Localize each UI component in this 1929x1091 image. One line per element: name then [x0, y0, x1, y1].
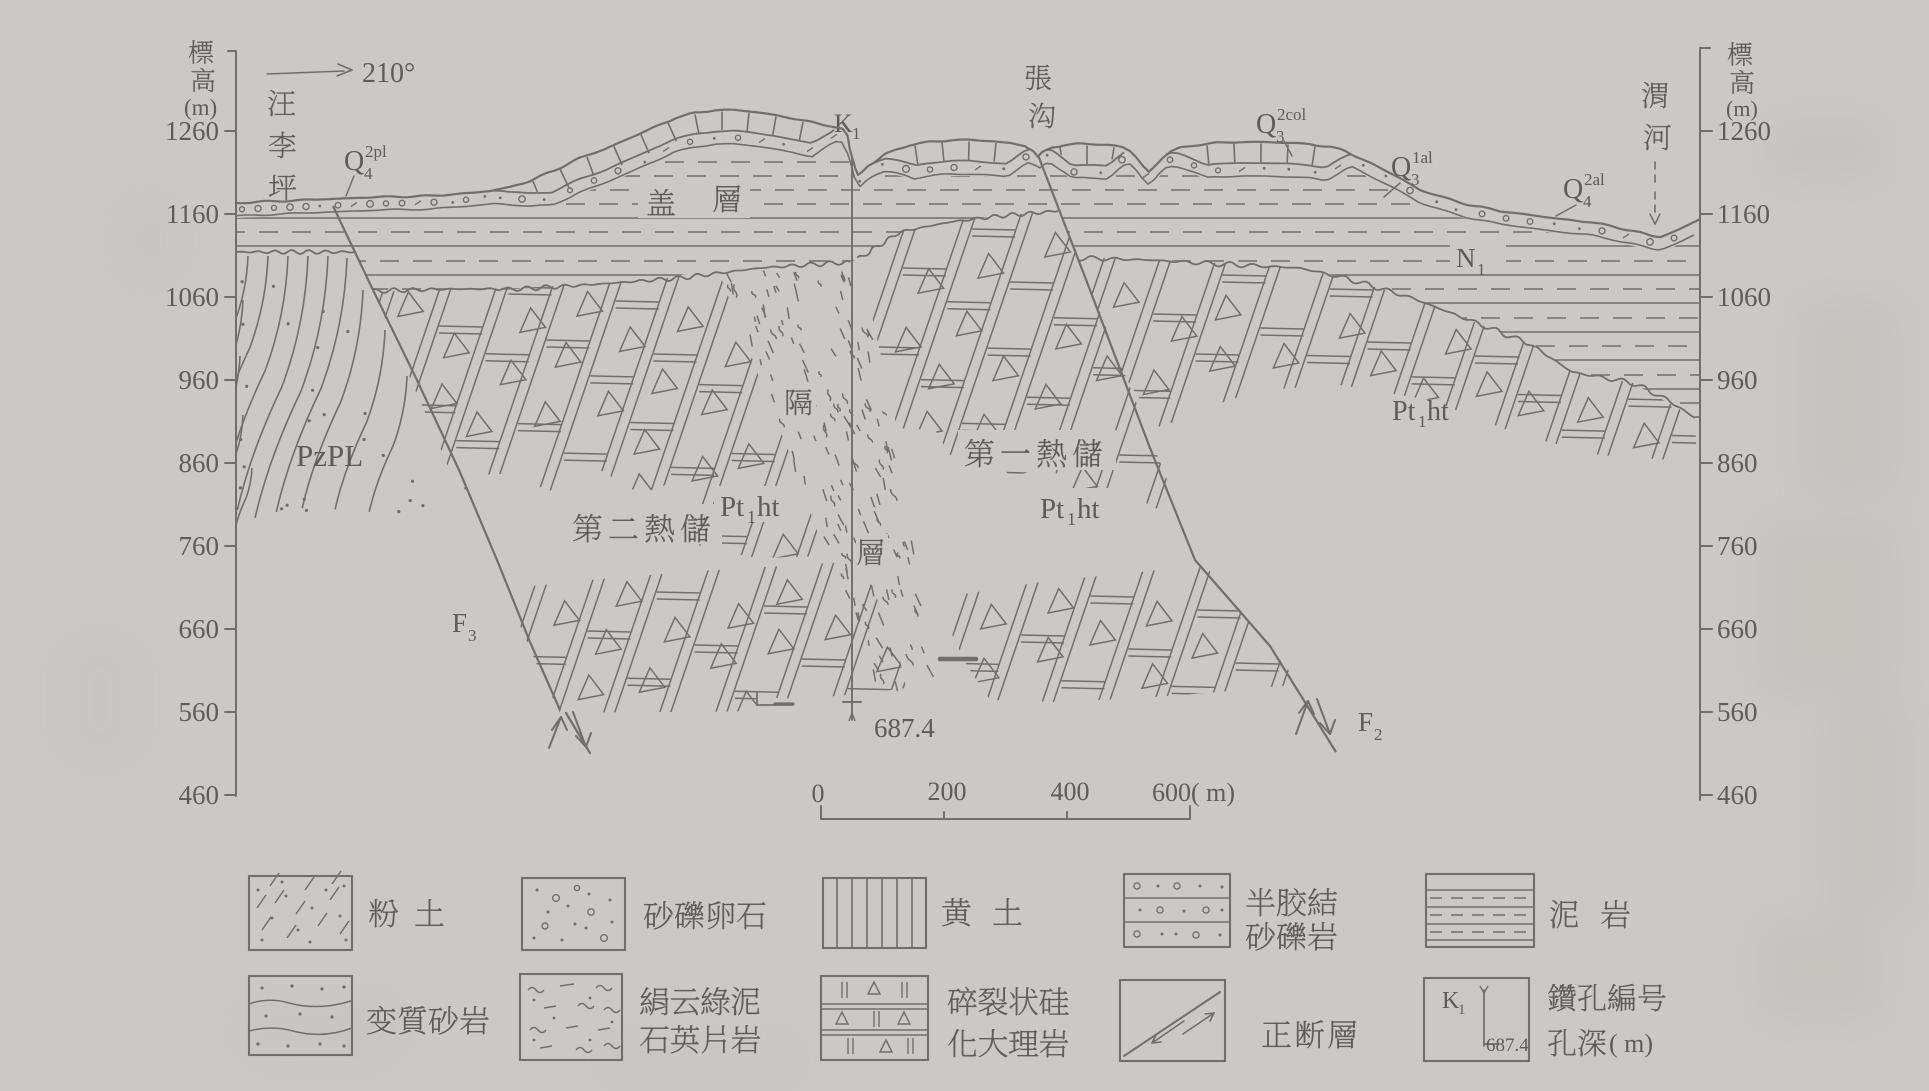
svg-text:(m): (m) — [1726, 96, 1758, 121]
svg-text:400: 400 — [1051, 777, 1090, 806]
svg-text:ht: ht — [757, 491, 780, 523]
svg-text:2al: 2al — [1584, 170, 1605, 189]
svg-text:N: N — [1456, 243, 1476, 273]
svg-text:560: 560 — [179, 697, 220, 727]
svg-text:760: 760 — [1717, 531, 1758, 561]
svg-text:Q: Q — [1256, 109, 1276, 140]
svg-text:3: 3 — [468, 626, 477, 645]
svg-text:1: 1 — [1418, 412, 1427, 431]
svg-text:687.4: 687.4 — [1486, 1035, 1529, 1056]
svg-text:460: 460 — [1717, 780, 1758, 810]
svg-text:( m): ( m) — [1609, 1029, 1653, 1058]
svg-text:460: 460 — [179, 780, 220, 810]
svg-text:Pt: Pt — [720, 491, 744, 523]
svg-text:210°: 210° — [362, 58, 415, 89]
svg-text:1060: 1060 — [1717, 282, 1771, 312]
svg-text:F: F — [452, 608, 467, 638]
svg-text:560: 560 — [1717, 697, 1758, 727]
svg-text:K: K — [834, 109, 853, 138]
svg-text:3: 3 — [1276, 127, 1285, 146]
svg-text:Pt: Pt — [1040, 493, 1064, 525]
svg-text:960: 960 — [1717, 365, 1758, 395]
svg-text:1160: 1160 — [166, 199, 219, 229]
svg-text:660: 660 — [179, 614, 220, 644]
svg-text:687.4: 687.4 — [874, 713, 935, 743]
svg-text:660: 660 — [1717, 614, 1758, 644]
svg-text:2pl: 2pl — [365, 142, 387, 161]
svg-text:2: 2 — [1374, 725, 1383, 744]
svg-text:1: 1 — [1067, 509, 1076, 529]
svg-text:1: 1 — [1458, 1002, 1466, 1018]
svg-text:1160: 1160 — [1717, 199, 1770, 229]
svg-text:860: 860 — [1717, 448, 1758, 478]
svg-text:4: 4 — [1583, 192, 1592, 211]
svg-text:1260: 1260 — [165, 116, 219, 146]
svg-text:Q: Q — [1391, 152, 1411, 183]
svg-text:Pt: Pt — [1392, 396, 1416, 427]
svg-text:F: F — [1358, 707, 1373, 737]
svg-text:3: 3 — [1411, 170, 1420, 189]
svg-text:760: 760 — [179, 531, 220, 561]
svg-text:(m): (m) — [184, 95, 217, 120]
svg-text:1al: 1al — [1412, 148, 1433, 167]
svg-text:1060: 1060 — [165, 282, 219, 312]
svg-text:ht: ht — [1427, 396, 1449, 427]
svg-text:4: 4 — [364, 164, 373, 183]
svg-text:960: 960 — [179, 365, 220, 395]
svg-text:2col: 2col — [1277, 105, 1307, 124]
svg-text:1: 1 — [852, 124, 861, 143]
svg-text:1: 1 — [747, 507, 756, 527]
svg-text:Q: Q — [344, 146, 364, 177]
svg-text:ht: ht — [1077, 493, 1100, 525]
svg-text:Q: Q — [1563, 174, 1583, 205]
svg-text:1: 1 — [1477, 260, 1486, 279]
svg-text:PzPL: PzPL — [296, 438, 363, 473]
svg-text:600( m): 600( m) — [1152, 778, 1235, 807]
svg-text:860: 860 — [179, 448, 220, 478]
svg-text:200: 200 — [928, 777, 967, 806]
svg-text:0: 0 — [812, 779, 825, 808]
